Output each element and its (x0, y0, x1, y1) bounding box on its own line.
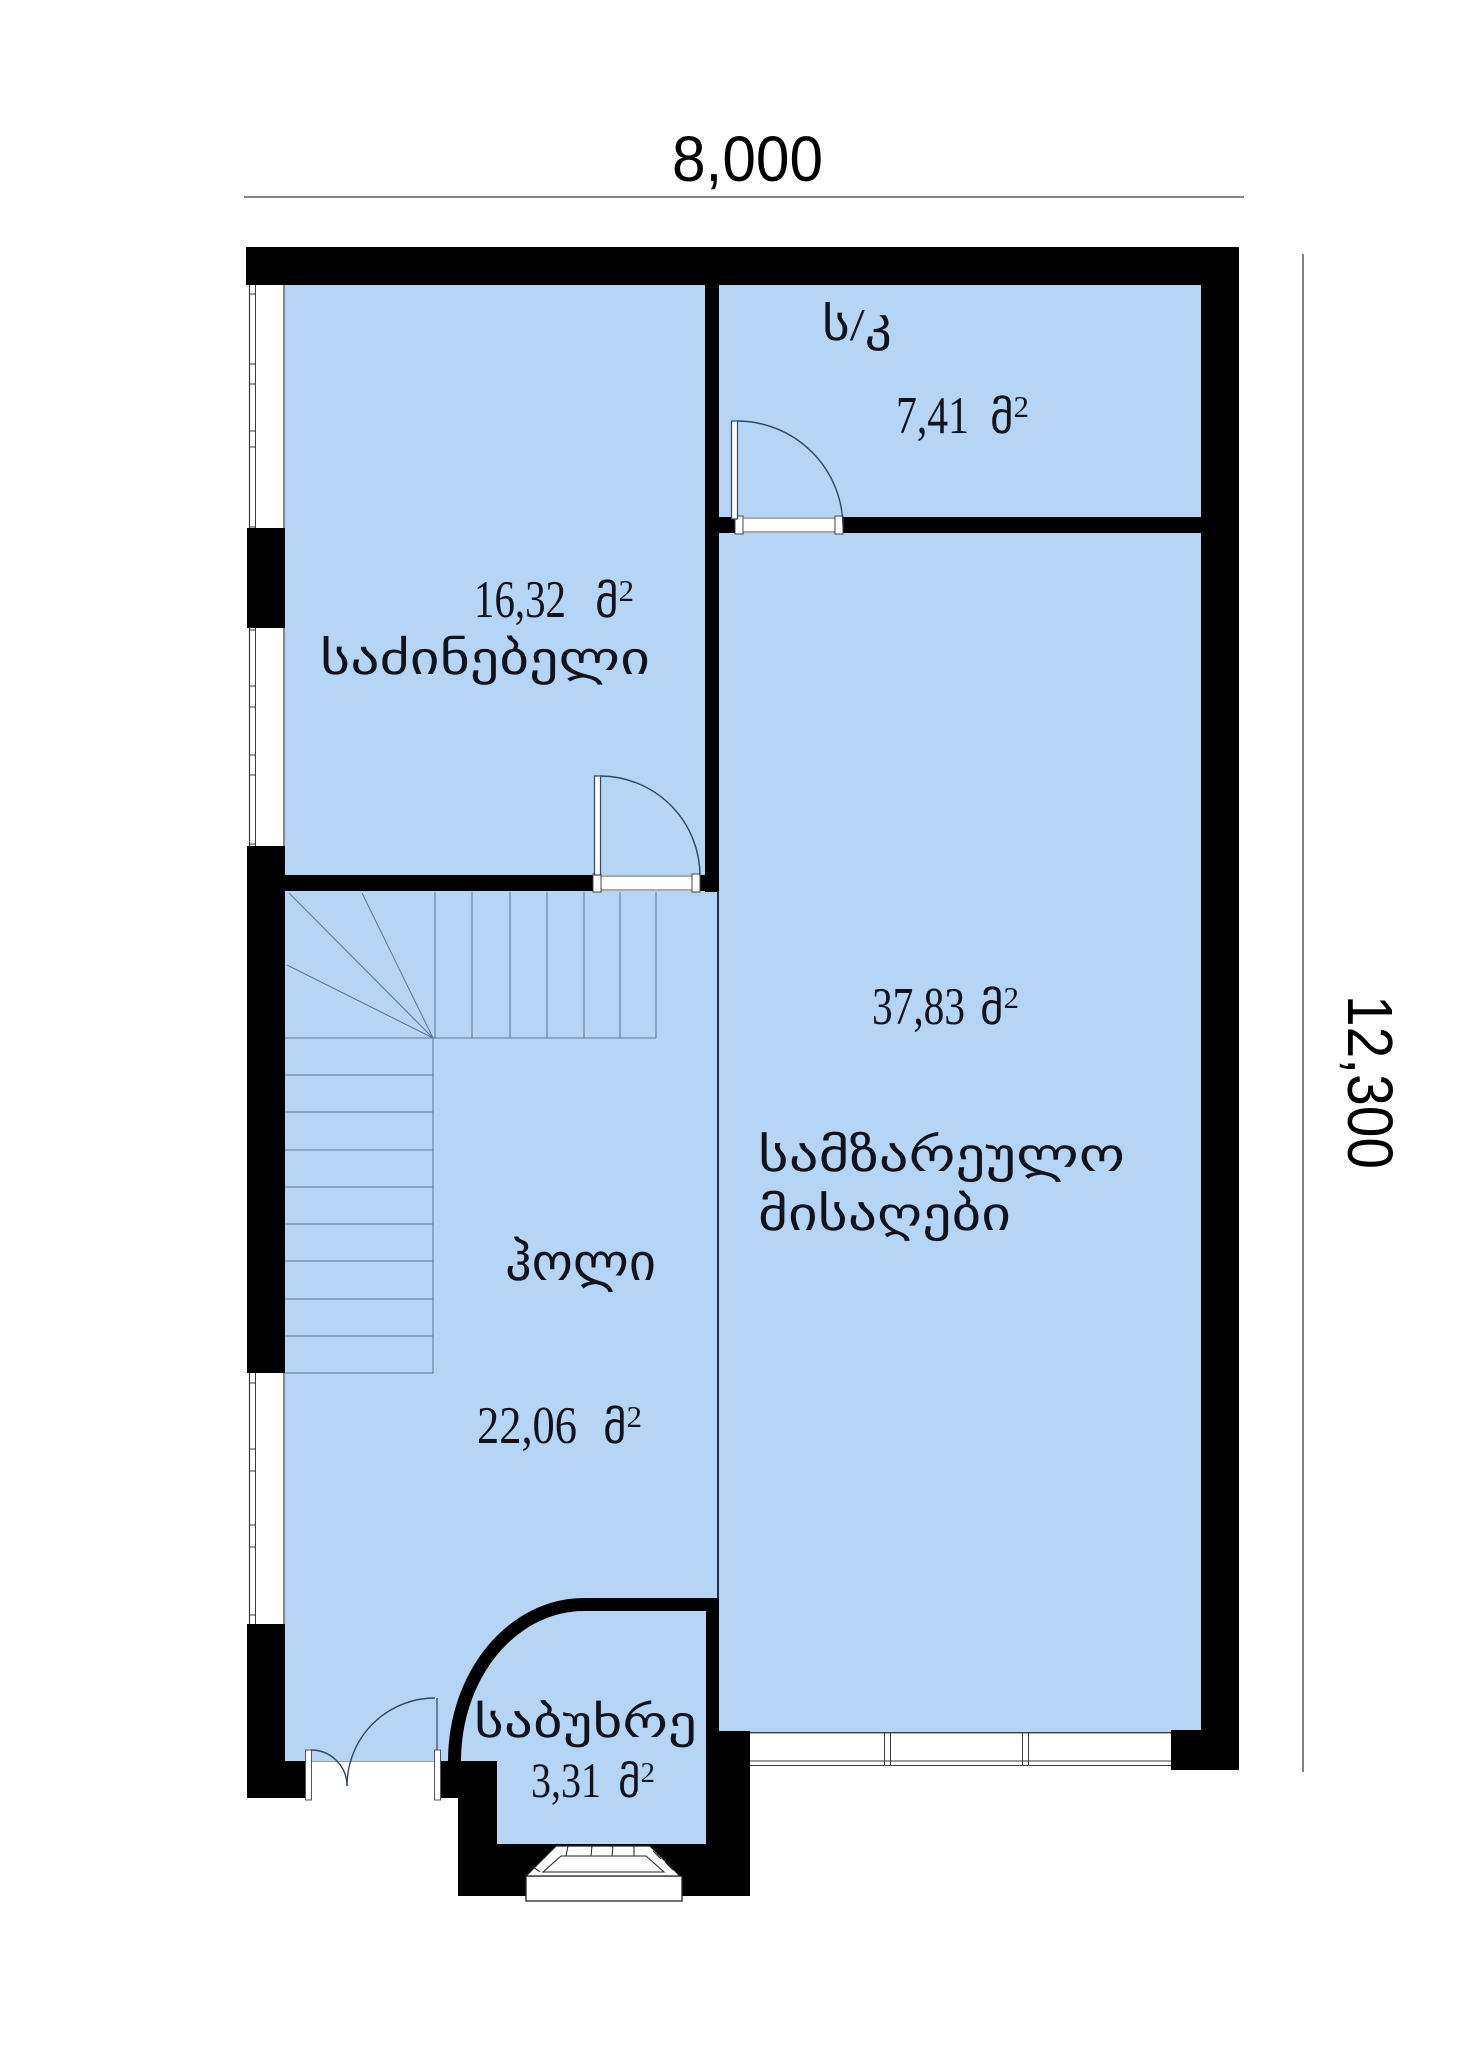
svg-text:საძინებელი: საძინებელი (320, 633, 650, 685)
svg-text:მისაღები: მისაღები (758, 1189, 1011, 1242)
svg-text:3,31: 3,31 (531, 1752, 601, 1808)
svg-text:ს/კ: ს/კ (822, 299, 892, 351)
svg-text:7,41: 7,41 (896, 387, 969, 445)
svg-text:სამზარეულო: სამზარეულო (758, 1130, 1125, 1183)
svg-text:საბუხრე: საბუხრე (474, 1698, 697, 1748)
svg-text:37,83: 37,83 (872, 978, 965, 1036)
svg-text:8,000: 8,000 (672, 123, 823, 195)
svg-text:16,32: 16,32 (474, 571, 566, 629)
svg-text:22,06: 22,06 (477, 1397, 577, 1455)
svg-text:12,300: 12,300 (1334, 995, 1406, 1169)
svg-text:ჰოლი: ჰოლი (505, 1235, 656, 1292)
